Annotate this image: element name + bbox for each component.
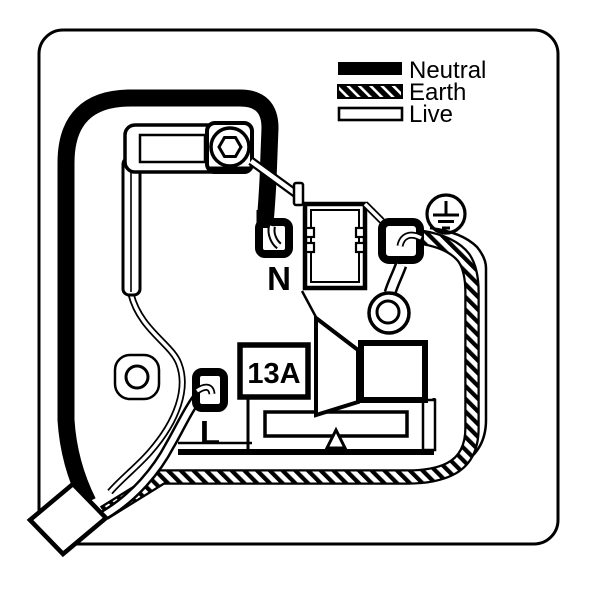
live-terminal-label: L bbox=[200, 414, 220, 451]
diagram-canvas: Neutral Earth Live bbox=[0, 0, 600, 600]
fuse-rating-label: 13A bbox=[247, 358, 300, 390]
screw-head-icon bbox=[377, 301, 399, 323]
legend-swatch-earth bbox=[338, 85, 402, 98]
legend-label-live: Live bbox=[409, 101, 453, 128]
fuse-clip-right bbox=[361, 343, 425, 400]
clamp-screw-icon bbox=[211, 128, 249, 166]
neutral-terminal-label: N bbox=[267, 260, 291, 297]
legend-swatch-neutral bbox=[338, 62, 402, 75]
earth-terminal bbox=[382, 222, 421, 260]
live-terminal: L bbox=[196, 372, 224, 451]
plug-wiring-diagram: Neutral Earth Live bbox=[0, 0, 600, 600]
legend-swatch-live bbox=[339, 108, 402, 120]
screw-head-icon bbox=[126, 366, 148, 388]
cable-clamp bbox=[125, 123, 252, 172]
left-screw bbox=[115, 355, 159, 399]
